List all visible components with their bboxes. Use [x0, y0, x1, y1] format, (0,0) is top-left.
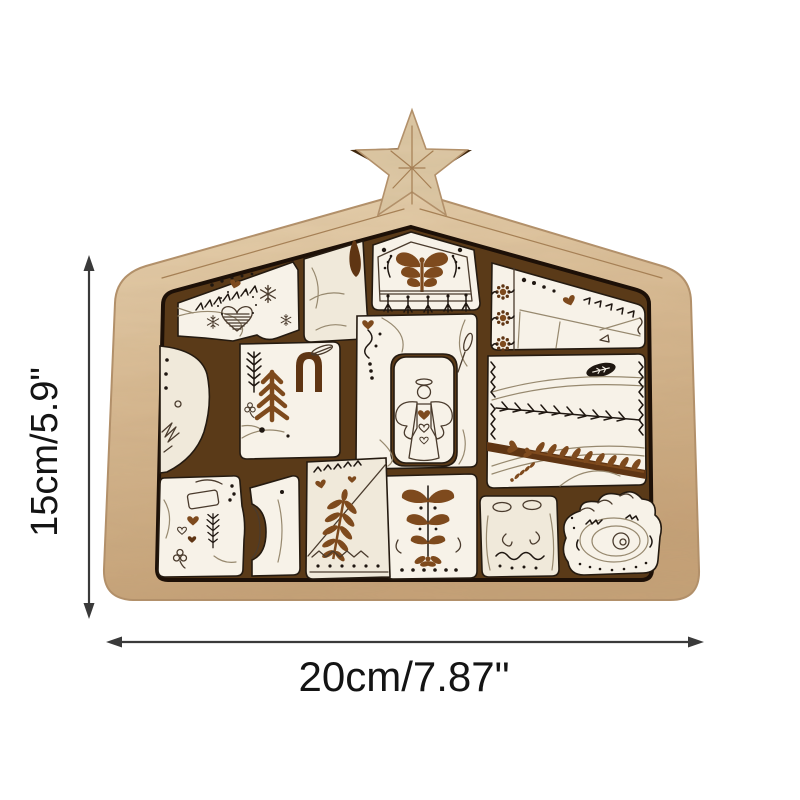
puzzle-piece-leaf-plant — [386, 474, 477, 579]
puzzle-piece-right-stripes — [487, 354, 646, 488]
product-dimension-image: 15cm/5.9" 20cm/7.87" — [0, 0, 800, 800]
arrow-down-icon — [84, 603, 95, 619]
product-photo: 15cm/5.9" 20cm/7.87" — [0, 0, 800, 800]
puzzle-piece-fern — [306, 458, 390, 579]
arrow-right-icon — [688, 637, 704, 648]
height-dimension-label: 15cm/5.9" — [24, 367, 66, 537]
height-dimension: 15cm/5.9" — [24, 255, 95, 619]
puzzle-piece-ox — [158, 476, 245, 577]
width-dimension-label: 20cm/7.87" — [298, 653, 509, 700]
puzzle-piece-manger — [480, 496, 559, 577]
arrow-up-icon — [84, 255, 95, 271]
arrow-left-icon — [106, 637, 122, 648]
star-icon — [357, 110, 467, 215]
puzzle-piece-angel — [394, 357, 454, 463]
width-dimension: 20cm/7.87" — [106, 637, 704, 701]
puzzle-piece-donkey — [240, 342, 340, 459]
